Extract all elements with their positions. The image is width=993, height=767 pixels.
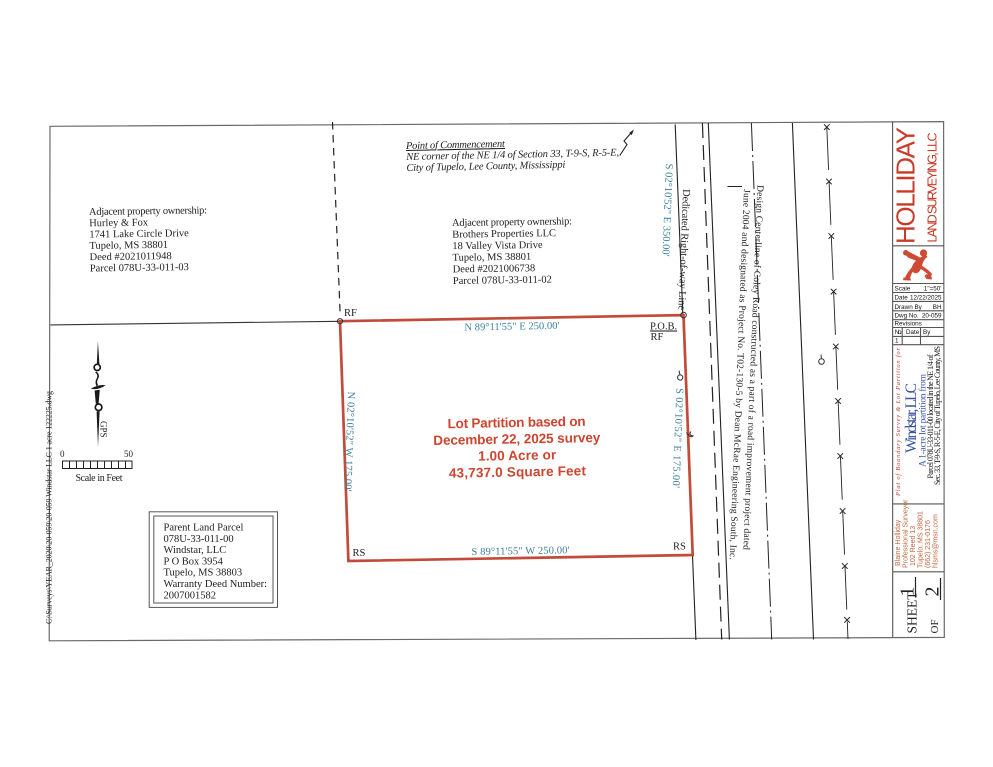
svg-text:Blaine Holliday: Blaine Holliday	[895, 519, 902, 566]
svg-text:078U-33-011-00: 078U-33-011-00	[164, 534, 234, 545]
svg-text:Scale in Feet: Scale in Feet	[76, 473, 123, 484]
svg-text:GPS: GPS	[99, 421, 109, 438]
svg-text:18 Valley Vista Drive: 18 Valley Vista Drive	[452, 240, 543, 252]
svg-text:(662) 231-0176: (662) 231-0176	[925, 520, 932, 568]
svg-text:Windstar, LLC: Windstar, LLC	[164, 545, 227, 556]
svg-text:December 22, 2025 survey: December 22, 2025 survey	[433, 430, 601, 448]
svg-text:1.00 Acre or: 1.00 Acre or	[478, 447, 557, 463]
svg-text:RS: RS	[353, 548, 366, 559]
svg-text:S 89°11'55" W 250.00': S 89°11'55" W 250.00'	[471, 545, 569, 558]
svg-text:0: 0	[60, 449, 65, 459]
svg-text:P.O.B.: P.O.B.	[650, 322, 677, 333]
svg-text:hlsms@msn.com: hlsms@msn.com	[933, 514, 940, 568]
svg-text:No.: No.	[895, 329, 902, 336]
svg-text:43,737.0 Square Feet: 43,737.0 Square Feet	[449, 463, 587, 480]
svg-text:Brothers Properties LLC: Brothers Properties LLC	[452, 228, 556, 240]
svg-text:Deed #2021006738: Deed #2021006738	[453, 263, 536, 275]
svg-text:RS: RS	[673, 542, 686, 553]
svg-text:Professional Surveyor: Professional Surveyor	[903, 499, 910, 568]
svg-text:By: By	[923, 329, 931, 336]
svg-text:Tupelo, MS 38801: Tupelo, MS 38801	[452, 252, 531, 264]
svg-text:Sec. 33, T-9-S, R-5-E, City of: Sec. 33, T-9-S, R-5-E, City of Tupelo, L…	[933, 346, 942, 485]
svg-text:Revisions: Revisions	[895, 321, 922, 328]
svg-text:1"=50': 1"=50'	[924, 286, 942, 293]
svg-text:1: 1	[895, 338, 899, 345]
svg-text:Hurley & Fox: Hurley & Fox	[89, 217, 149, 229]
svg-text:Parcel 078U-33-011-02: Parcel 078U-33-011-02	[453, 275, 552, 287]
svg-text:HOLLIDAY: HOLLIDAY	[891, 127, 921, 244]
svg-text:Windstar, LLC: Windstar, LLC	[903, 383, 920, 453]
svg-text:1741 Lake Circle Drive: 1741 Lake Circle Drive	[89, 228, 189, 240]
svg-text:Tupelo, MS 38801: Tupelo, MS 38801	[89, 240, 168, 252]
svg-text:Tupelo, MS 38803: Tupelo, MS 38803	[164, 568, 243, 579]
svg-text:102 Reed 13: 102 Reed 13	[910, 526, 917, 566]
svg-text:BH: BH	[933, 304, 942, 311]
svg-text:50: 50	[124, 449, 134, 459]
svg-text:Lot Partition based on: Lot Partition based on	[447, 414, 585, 431]
svg-text:Warranty Deed Number:: Warranty Deed Number:	[164, 579, 268, 590]
svg-text:LAND SURVEYING, LLC: LAND SURVEYING, LLC	[926, 133, 940, 243]
svg-text:Date: Date	[895, 295, 909, 302]
svg-text:Adjacent property ownership:: Adjacent property ownership:	[89, 205, 207, 218]
svg-text:RF: RF	[651, 332, 664, 343]
svg-text:Deed #2021011948: Deed #2021011948	[90, 251, 172, 263]
svg-text:12/22/2025: 12/22/2025	[910, 295, 942, 302]
svg-text:Date: Date	[906, 329, 920, 336]
svg-text:Adjacent property ownership:: Adjacent property ownership:	[452, 216, 572, 229]
svg-text:OF: OF	[929, 619, 941, 633]
svg-text:RF: RF	[344, 308, 357, 319]
svg-text:2007001582: 2007001582	[164, 590, 217, 601]
svg-text:Dwg No.: Dwg No.	[895, 313, 919, 320]
svg-text:Parent Land Parcel: Parent Land Parcel	[164, 523, 244, 534]
svg-text:Parcel 078U-33-011-03: Parcel 078U-33-011-03	[90, 262, 189, 274]
svg-text:Scale: Scale	[895, 286, 911, 293]
svg-text:P O Box 3954: P O Box 3954	[164, 556, 224, 567]
svg-text:Drawn By: Drawn By	[895, 304, 923, 311]
svg-text:Tupelo, MS 38801: Tupelo, MS 38801	[918, 511, 925, 568]
svg-text:N 89°11'55" E 250.00': N 89°11'55" E 250.00'	[464, 321, 559, 334]
svg-text:Plat of Boundary Survey & Lot: Plat of Boundary Survey & Lot Partition …	[895, 348, 902, 497]
svg-text:20-059: 20-059	[922, 313, 942, 320]
svg-text:C:\Surveys\YEAR_2020\20-059\20: C:\Surveys\YEAR_2020\20-059\20-059 Winds…	[45, 391, 54, 624]
